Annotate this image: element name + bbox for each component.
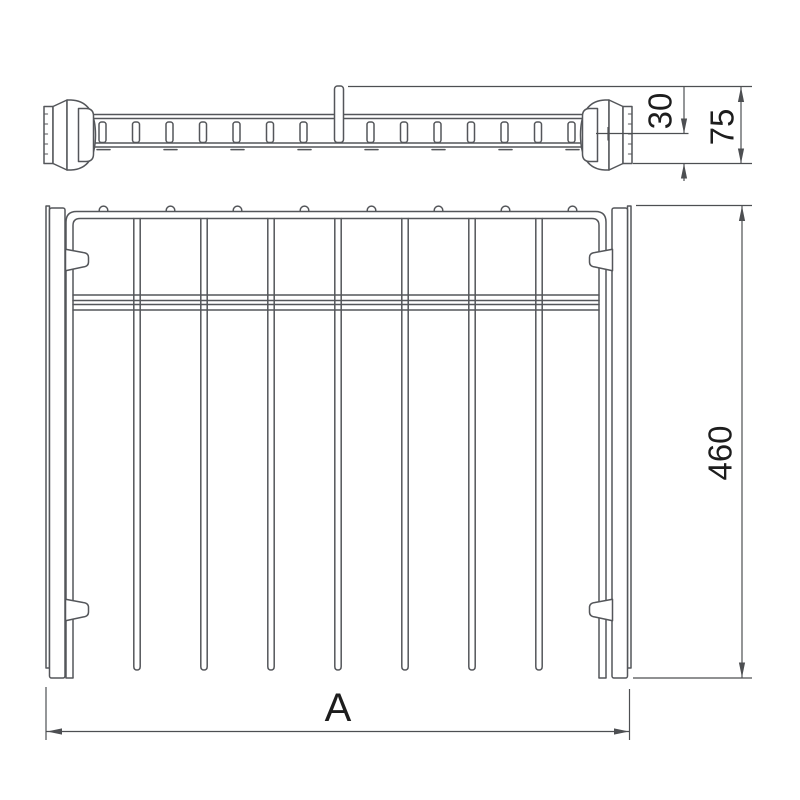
technical-drawing-page: 30 75 460 A xyxy=(0,0,800,800)
rail-slat xyxy=(535,122,542,143)
front-view-rail-elevation xyxy=(44,86,632,170)
dimension-460: 460 xyxy=(702,206,743,678)
plan-view-rack xyxy=(46,206,631,678)
arrowhead-down xyxy=(738,149,744,164)
arrowhead-down xyxy=(681,119,687,134)
right-cap-bracket xyxy=(583,109,598,162)
rail-slat xyxy=(99,122,106,143)
dimension-label-460: 460 xyxy=(702,425,739,480)
rail-slat xyxy=(166,122,173,143)
rail-slat xyxy=(501,122,508,143)
right-cap-cone xyxy=(609,100,623,170)
left-cap-bracket xyxy=(79,109,94,162)
left-rail-bar xyxy=(50,208,66,678)
dimension-label-75: 75 xyxy=(704,109,741,146)
left-mounting-rail xyxy=(46,206,65,678)
dimension-A: A xyxy=(47,686,630,732)
arrowhead-left xyxy=(47,728,62,734)
dimension-75: 75 xyxy=(704,87,742,163)
arrowhead-down xyxy=(739,663,745,678)
left-cap-cone xyxy=(53,100,67,170)
arrowhead-up xyxy=(681,164,687,179)
center-mounting-pin xyxy=(335,86,344,143)
rail-slat xyxy=(267,122,274,143)
dimension-label-A: A xyxy=(325,686,352,730)
rail-slat xyxy=(434,122,441,143)
right-rail-bar xyxy=(612,208,628,678)
rail-slat xyxy=(200,122,207,143)
dimension-label-30: 30 xyxy=(642,93,679,130)
left-wall-plate xyxy=(44,107,53,164)
right-wall-plate xyxy=(623,107,632,164)
rail-slat xyxy=(133,122,140,143)
right-end-cap xyxy=(581,100,633,170)
rail-slat xyxy=(468,122,475,143)
left-end-cap xyxy=(44,100,96,170)
rail-slat xyxy=(367,122,374,143)
frame-inner-outline xyxy=(73,219,599,679)
arrowhead-up xyxy=(738,87,744,102)
hanger-rack-drawing: 30 75 460 A xyxy=(0,0,800,800)
rail-slat xyxy=(300,122,307,143)
arrowhead-right xyxy=(614,728,629,734)
rail-slat xyxy=(233,122,240,143)
rail-slat xyxy=(401,122,408,143)
rail-slat xyxy=(568,122,575,143)
right-mounting-rail xyxy=(612,206,631,678)
arrowhead-up xyxy=(739,206,745,221)
